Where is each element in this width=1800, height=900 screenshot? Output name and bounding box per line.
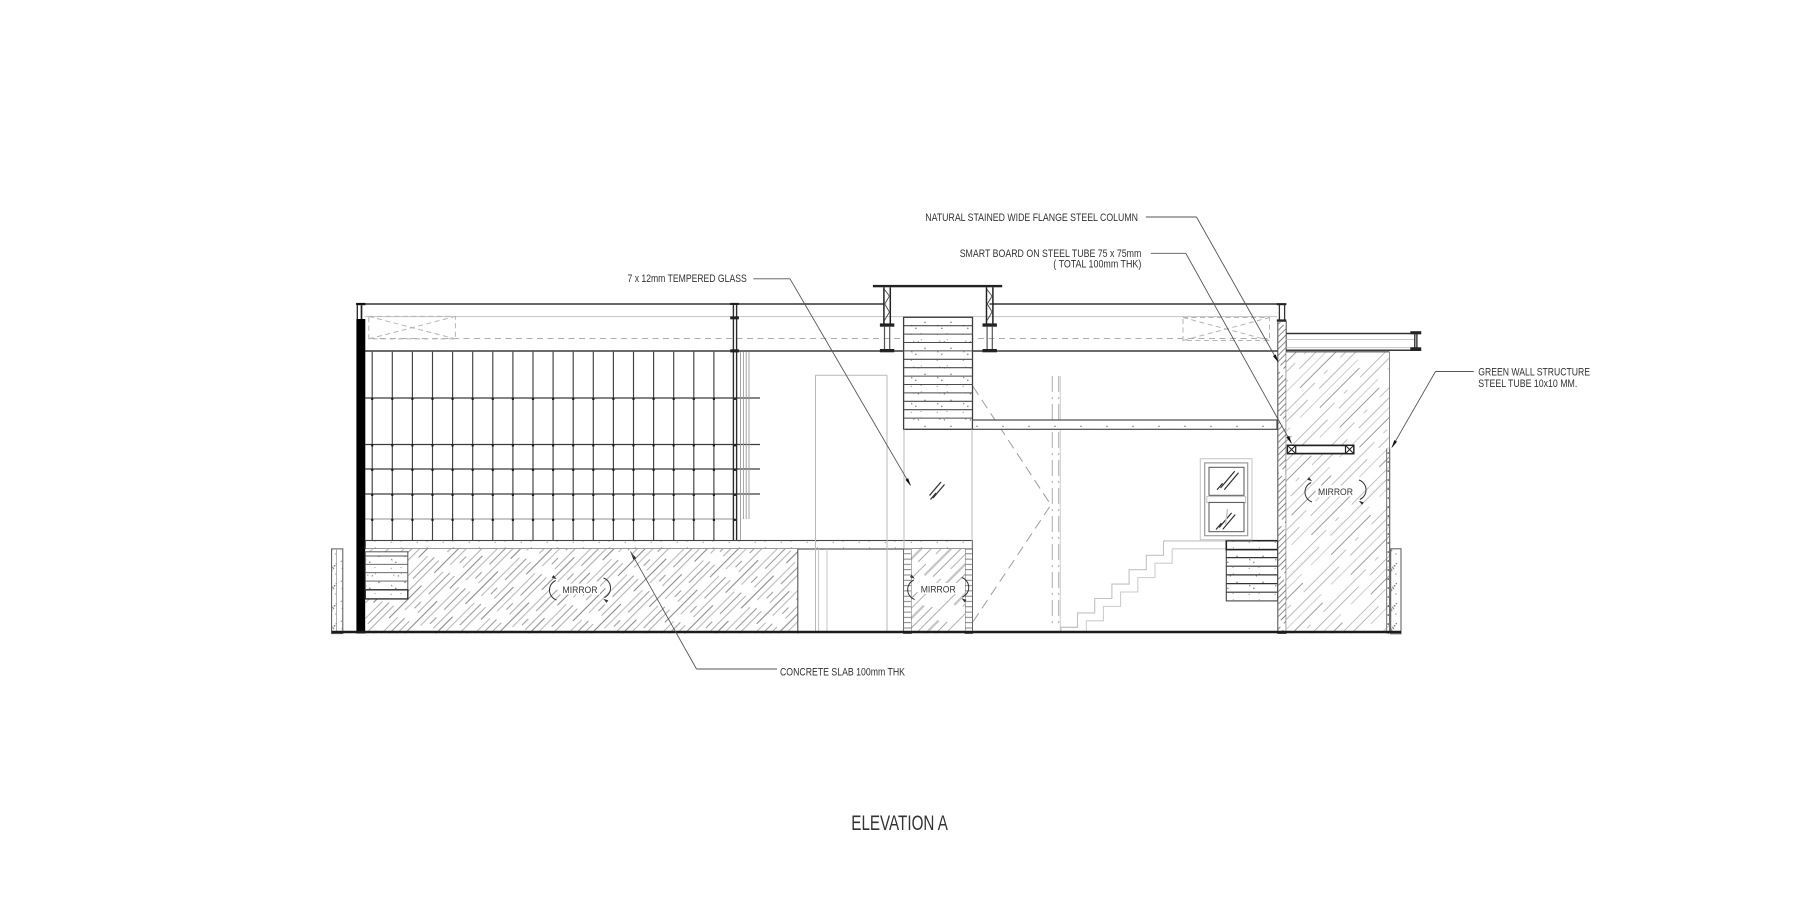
svg-text:GREEN WALL STRUCTURE: GREEN WALL STRUCTURE xyxy=(1478,366,1590,378)
svg-text:( TOTAL 100mm THK): ( TOTAL 100mm THK) xyxy=(1053,258,1141,270)
svg-text:7 x 12mm TEMPERED GLASS: 7 x 12mm TEMPERED GLASS xyxy=(628,273,747,285)
svg-text:STEEL TUBE 10x10 MM.: STEEL TUBE 10x10 MM. xyxy=(1478,378,1577,390)
svg-text:CONCRETE SLAB 100mm THK: CONCRETE SLAB 100mm THK xyxy=(780,667,906,679)
svg-text:MIRROR: MIRROR xyxy=(563,585,598,596)
svg-text:MIRROR: MIRROR xyxy=(1318,487,1353,498)
svg-text:ELEVATION A: ELEVATION A xyxy=(851,812,948,835)
svg-text:NATURAL STAINED WIDE FLANGE ST: NATURAL STAINED WIDE FLANGE STEEL COLUMN xyxy=(925,212,1138,224)
svg-text:MIRROR: MIRROR xyxy=(921,584,956,595)
